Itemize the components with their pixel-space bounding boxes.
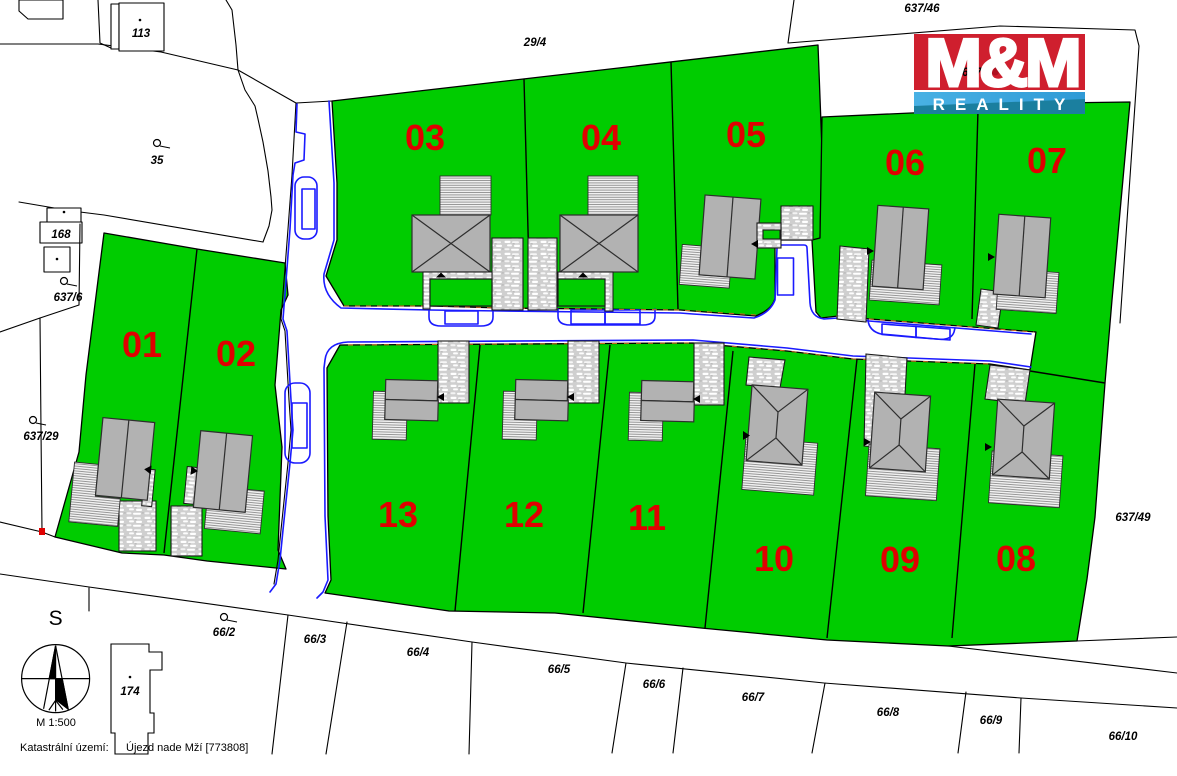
svg-text:10: 10 [754, 538, 794, 579]
svg-text:01: 01 [122, 324, 162, 365]
svg-text:05: 05 [726, 114, 766, 155]
svg-text:66/2: 66/2 [213, 627, 236, 639]
svg-text:12: 12 [504, 494, 544, 535]
svg-text:637/46: 637/46 [904, 3, 940, 15]
svg-text:Újezd nade Mží [773808]: Újezd nade Mží [773808] [126, 741, 248, 754]
svg-text:04: 04 [581, 117, 621, 158]
svg-text:35: 35 [151, 155, 164, 167]
svg-text:66/4: 66/4 [407, 647, 430, 659]
svg-text:02: 02 [216, 333, 256, 374]
svg-text:174: 174 [120, 686, 140, 698]
svg-text:03: 03 [405, 117, 445, 158]
svg-text:11: 11 [628, 497, 666, 538]
svg-text:29/4: 29/4 [523, 37, 547, 49]
svg-text:06: 06 [885, 142, 925, 183]
svg-text:66/10: 66/10 [1109, 731, 1138, 743]
svg-text:113: 113 [132, 28, 151, 40]
svg-text:M&M: M&M [925, 25, 1078, 101]
svg-text:REALITY: REALITY [933, 95, 1076, 114]
svg-text:66/3: 66/3 [304, 634, 327, 646]
svg-text:66/7: 66/7 [742, 692, 765, 704]
svg-text:637/29: 637/29 [23, 431, 59, 443]
svg-text:Katastrální území:: Katastrální území: [20, 742, 109, 754]
svg-text:M 1:500: M 1:500 [36, 717, 76, 729]
svg-text:637/6: 637/6 [54, 292, 83, 304]
svg-text:08: 08 [996, 538, 1036, 579]
svg-text:07: 07 [1027, 140, 1067, 181]
svg-text:13: 13 [378, 494, 418, 535]
svg-text:S: S [49, 607, 63, 630]
svg-text:09: 09 [880, 539, 920, 580]
svg-text:66/6: 66/6 [643, 679, 666, 691]
svg-text:637/49: 637/49 [1115, 512, 1151, 524]
svg-text:66/8: 66/8 [877, 707, 900, 719]
svg-text:66/5: 66/5 [548, 664, 571, 676]
svg-text:66/9: 66/9 [980, 715, 1003, 727]
svg-text:168: 168 [51, 229, 71, 241]
